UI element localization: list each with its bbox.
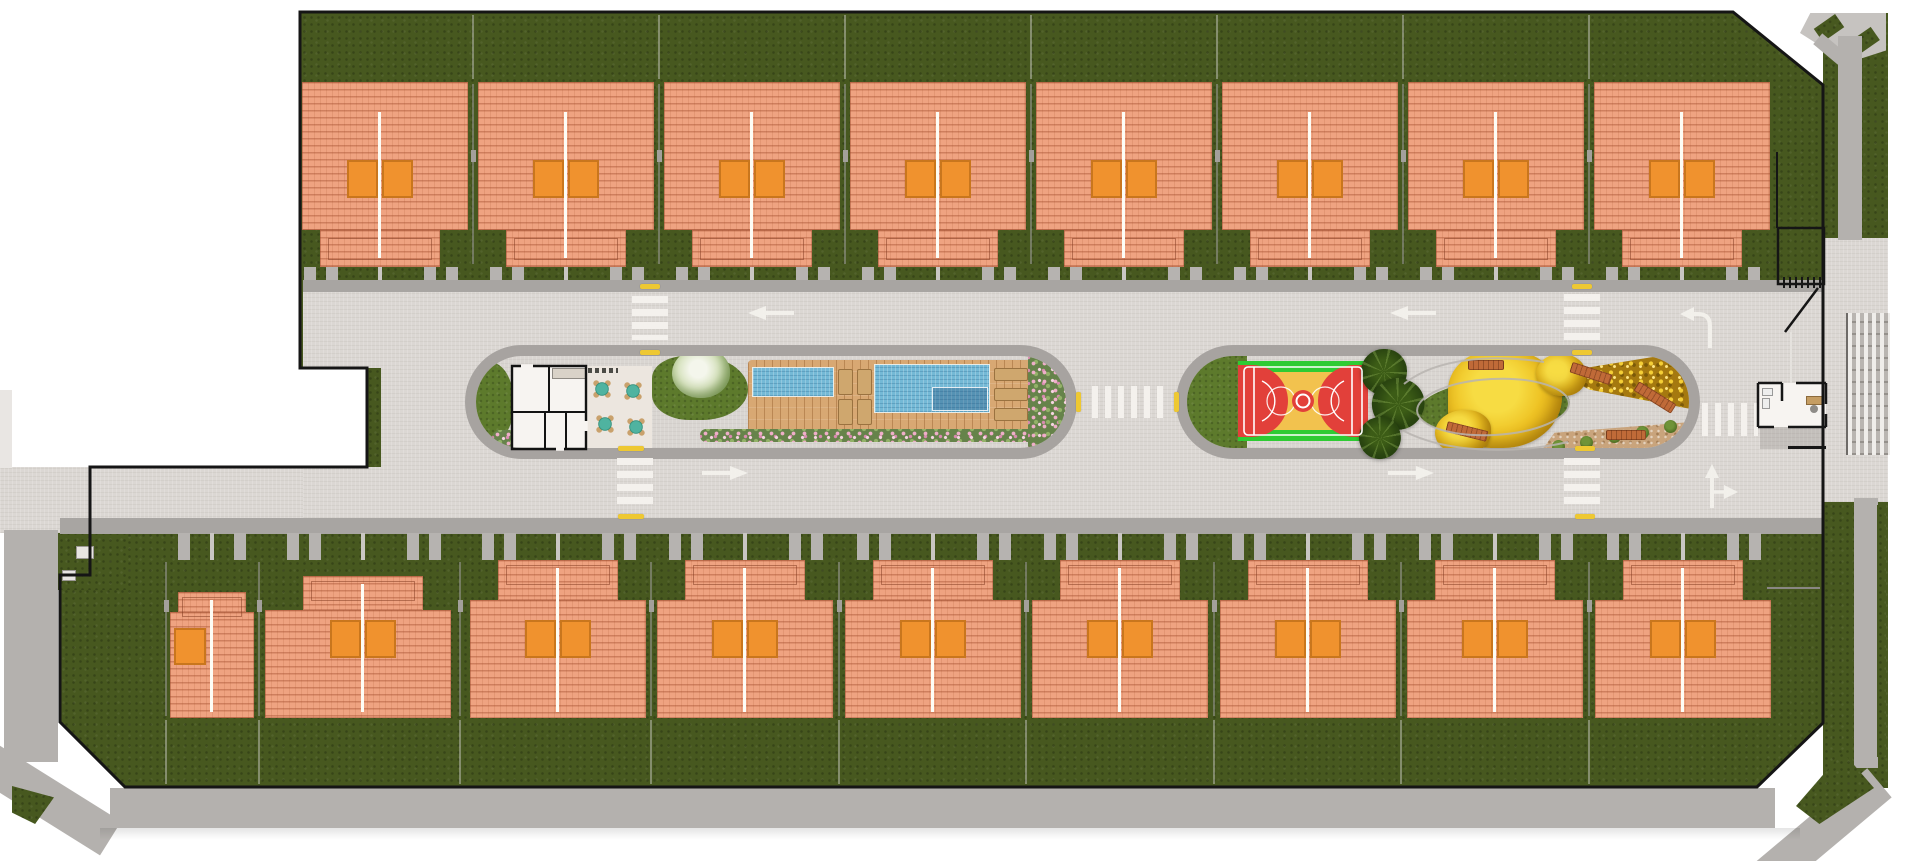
roof-ridge xyxy=(1308,112,1311,258)
driveway-stub xyxy=(999,533,1011,560)
roof-skylight xyxy=(900,620,931,658)
front-path xyxy=(564,267,568,280)
fence-post xyxy=(1399,600,1404,612)
driveway-stub xyxy=(504,533,516,560)
roof-skylight xyxy=(1649,160,1680,198)
backyard-fence xyxy=(1588,15,1590,79)
perimeter-road-east xyxy=(1854,498,1878,768)
crosswalk xyxy=(1092,386,1168,418)
driveway-stub xyxy=(610,267,622,280)
lot-divider xyxy=(1588,84,1590,264)
driveway-stub xyxy=(1186,533,1198,560)
roof-skylight xyxy=(1463,160,1494,198)
roof-skylight xyxy=(1685,620,1716,658)
front-path xyxy=(1308,267,1312,280)
driveway-stub xyxy=(309,533,321,560)
roof-skylight xyxy=(935,620,966,658)
road-edge-marker xyxy=(1575,446,1595,451)
driveway-stub xyxy=(482,533,494,560)
driveway-stub xyxy=(1070,267,1082,280)
front-path xyxy=(378,267,382,280)
lot-divider xyxy=(650,562,652,716)
driveway-stub xyxy=(1749,533,1761,560)
driveway-stub xyxy=(857,533,869,560)
driveway-stub xyxy=(490,267,502,280)
amenity-island-clubhouse-pool xyxy=(465,345,1077,459)
flowering-tree xyxy=(672,348,730,398)
driveway-stub xyxy=(1232,533,1244,560)
pool-lounger xyxy=(838,399,853,425)
lot-divider xyxy=(1030,84,1032,264)
gatehouse-desk xyxy=(1806,396,1824,405)
fence-post xyxy=(843,150,848,162)
driveway-stub xyxy=(1376,267,1388,280)
east-service-path xyxy=(1838,36,1862,240)
roof-ridge xyxy=(743,568,746,712)
front-path xyxy=(1122,267,1126,280)
front-path xyxy=(361,533,365,560)
driveway-stub xyxy=(811,533,823,560)
crosswalk xyxy=(1702,403,1758,436)
backyard-fence xyxy=(1216,15,1218,79)
gatehouse-access-path xyxy=(1790,332,1792,383)
backyard-fence xyxy=(1588,720,1590,784)
driveway-stub xyxy=(1374,533,1386,560)
lot-divider xyxy=(1588,562,1590,716)
driveway-stub xyxy=(1004,267,1016,280)
driveway-stub xyxy=(1629,533,1641,560)
lot-divider xyxy=(459,562,461,716)
road-edge-marker xyxy=(618,446,644,451)
roof-ridge xyxy=(1122,112,1125,258)
roof-skylight xyxy=(1126,160,1157,198)
roof-skylight xyxy=(525,620,556,658)
roof-skylight xyxy=(533,160,564,198)
backyard-fence xyxy=(258,720,260,784)
backyard-fence xyxy=(1030,15,1032,79)
south-sidewalk xyxy=(60,518,1823,534)
crosswalk xyxy=(617,458,653,506)
roof-skylight xyxy=(1312,160,1343,198)
roof-skylight xyxy=(940,160,971,198)
roof-skylight xyxy=(905,160,936,198)
driveway-stub xyxy=(1256,267,1268,280)
roof-ridge xyxy=(378,112,381,258)
driveway-stub xyxy=(691,533,703,560)
driveway-stub xyxy=(1442,267,1454,280)
driveway-stub xyxy=(1561,533,1573,560)
driveway-stub xyxy=(884,267,896,280)
backyard-fence xyxy=(1025,720,1027,784)
driveway-stub xyxy=(1562,267,1574,280)
terrace-table xyxy=(624,382,642,400)
gatehouse-wc-fixture xyxy=(1762,398,1770,409)
driveway-stub xyxy=(1441,533,1453,560)
roof-ridge xyxy=(931,568,934,712)
road-edge-marker xyxy=(640,350,660,355)
driveway-stub xyxy=(977,533,989,560)
perimeter-road-west xyxy=(4,530,58,762)
gatehouse-wc-fixture xyxy=(1762,388,1773,396)
driveway-stub xyxy=(304,267,316,280)
front-path xyxy=(1493,533,1497,560)
fence-post xyxy=(458,600,463,612)
kitchen-counter xyxy=(552,368,586,379)
roof-ridge xyxy=(1681,568,1684,712)
pool-lounger xyxy=(994,388,1028,401)
terrace-counter-seats xyxy=(588,368,618,373)
lap-pool-step xyxy=(932,387,988,411)
roof-ridge xyxy=(936,112,939,258)
driveway-stub xyxy=(234,533,246,560)
gatehouse-chair xyxy=(1810,405,1818,413)
roof-skylight xyxy=(1310,620,1341,658)
roof-skylight xyxy=(1122,620,1153,658)
site-plan xyxy=(0,0,1920,861)
roof-skylight xyxy=(347,160,378,198)
driveway-stub xyxy=(446,267,458,280)
roof-skylight xyxy=(174,628,206,665)
driveway-stub xyxy=(1419,533,1431,560)
lot-divider xyxy=(1400,562,1402,716)
roof-skylight xyxy=(1277,160,1308,198)
fence-post xyxy=(1029,150,1034,162)
fence-post xyxy=(1212,600,1217,612)
driveway-stub xyxy=(1748,267,1760,280)
fence-post xyxy=(471,150,476,162)
fence-post xyxy=(1024,600,1029,612)
fence-post xyxy=(164,600,169,612)
road-edge-marker xyxy=(1572,284,1592,289)
front-path xyxy=(936,267,940,280)
driveway-stub xyxy=(1190,267,1202,280)
garden-shrub xyxy=(1664,420,1677,433)
front-path xyxy=(750,267,754,280)
backyard-fence xyxy=(844,15,846,79)
amenity-island-court-garden xyxy=(1176,345,1700,459)
island-lawn-west-cap xyxy=(1179,354,1247,450)
driveway-stub xyxy=(1066,533,1078,560)
roof-skylight xyxy=(330,620,361,658)
crosswalk xyxy=(632,296,668,340)
driveway-stub xyxy=(669,533,681,560)
roof-skylight xyxy=(1684,160,1715,198)
driveway-stub xyxy=(1234,267,1246,280)
road-edge-marker xyxy=(1076,392,1081,412)
front-path xyxy=(743,533,747,560)
garden-shrub xyxy=(1552,440,1565,453)
roof-skylight xyxy=(712,620,743,658)
driveway-stub xyxy=(1420,267,1432,280)
roof-skylight xyxy=(719,160,750,198)
driveway-stub xyxy=(1354,267,1366,280)
roof-ridge xyxy=(1306,568,1309,712)
driveway-stub xyxy=(1628,267,1640,280)
crosswalk xyxy=(1564,458,1600,506)
roof-skylight xyxy=(568,160,599,198)
lot-divider xyxy=(844,84,846,264)
driveway-stub xyxy=(1539,533,1551,560)
front-path xyxy=(931,533,935,560)
roof-skylight xyxy=(747,620,778,658)
roof-skylight xyxy=(1462,620,1493,658)
driveway-stub xyxy=(676,267,688,280)
road-edge-marker xyxy=(1575,514,1595,519)
fence-post xyxy=(257,600,262,612)
driveway-stub xyxy=(1726,267,1738,280)
lot-divider xyxy=(1213,562,1215,716)
roof-skylight xyxy=(1091,160,1122,198)
lot-divider xyxy=(1025,562,1027,716)
backyard-fence xyxy=(658,15,660,79)
driveway-stub xyxy=(1540,267,1552,280)
driveway-stub xyxy=(407,533,419,560)
garden-bench xyxy=(1606,430,1646,440)
north-sidewalk xyxy=(303,280,1823,292)
terrace-table xyxy=(593,380,611,398)
crosswalk xyxy=(1564,294,1600,342)
terrace-table xyxy=(627,418,645,436)
roof-ridge xyxy=(210,600,213,712)
garden-bench xyxy=(1468,360,1504,370)
driveway-stub xyxy=(879,533,891,560)
driveway-stub xyxy=(982,267,994,280)
driveway-stub xyxy=(1352,533,1364,560)
utility-box xyxy=(62,570,76,581)
road-edge-marker xyxy=(1572,350,1592,355)
roof-skylight xyxy=(560,620,591,658)
basketball-court xyxy=(1238,361,1368,441)
boundary-notch xyxy=(60,368,367,467)
driveway-stub xyxy=(789,533,801,560)
lot-divider xyxy=(658,84,660,264)
terrace-table xyxy=(596,415,614,433)
roof-skylight xyxy=(1650,620,1681,658)
driveway-stub xyxy=(602,533,614,560)
driveway-stub xyxy=(1606,267,1618,280)
driveway-stub xyxy=(1164,533,1176,560)
fence-post xyxy=(837,600,842,612)
roof-ridge xyxy=(564,112,567,258)
fence-post xyxy=(657,150,662,162)
roof-skylight xyxy=(1275,620,1306,658)
bottom-edge-shadow xyxy=(100,828,1800,840)
backyard-fence xyxy=(459,720,461,784)
party-terrace xyxy=(586,366,652,449)
flower-bed-strip xyxy=(700,429,1040,442)
fence-post xyxy=(1587,600,1592,612)
roof-ridge xyxy=(361,584,364,712)
roof-ridge xyxy=(1118,568,1121,712)
front-path xyxy=(1680,267,1684,280)
backyard-fence xyxy=(165,720,167,784)
driveway-stub xyxy=(1727,533,1739,560)
backyard-fence xyxy=(1400,720,1402,784)
front-path xyxy=(556,533,560,560)
outer-sidewalk-sliver xyxy=(0,390,12,468)
front-path xyxy=(210,533,214,560)
lot-divider xyxy=(1402,84,1404,264)
house-roof xyxy=(302,82,468,230)
driveway-stub xyxy=(624,533,636,560)
driveway-stub xyxy=(862,267,874,280)
pool-lounger xyxy=(994,368,1028,381)
roof-ridge xyxy=(750,112,753,258)
backyard-fence xyxy=(1213,720,1215,784)
lot-divider xyxy=(165,562,167,716)
driveway-stub xyxy=(326,267,338,280)
roof-skylight xyxy=(1087,620,1118,658)
fence-post xyxy=(1401,150,1406,162)
driveway-stub xyxy=(698,267,710,280)
driveway-stub xyxy=(424,267,436,280)
roof-skylight xyxy=(382,160,413,198)
roof-skylight xyxy=(1498,160,1529,198)
entrance-gate-grate xyxy=(1846,313,1890,455)
lot-divider xyxy=(258,562,260,716)
backyard-fence xyxy=(650,720,652,784)
roof-ridge xyxy=(556,568,559,712)
front-path xyxy=(1118,533,1122,560)
driveway-stub xyxy=(287,533,299,560)
road-edge-marker xyxy=(1174,392,1179,412)
driveway-stub xyxy=(632,267,644,280)
driveway-stub xyxy=(178,533,190,560)
driveway-stub xyxy=(1254,533,1266,560)
driveway-stub xyxy=(1168,267,1180,280)
grass-fill-west xyxy=(58,530,128,590)
pool-lounger xyxy=(857,399,872,425)
lot-divider xyxy=(1216,84,1218,264)
entrance-wall-stub xyxy=(1788,446,1826,449)
pool-lounger xyxy=(994,408,1028,421)
driveway-stub xyxy=(1048,267,1060,280)
pool-lounger xyxy=(857,369,872,395)
roof-ridge xyxy=(1494,112,1497,258)
lot-divider xyxy=(838,562,840,716)
road-edge-marker xyxy=(640,284,660,289)
utility-box xyxy=(76,546,94,559)
driveway-stub xyxy=(1607,533,1619,560)
driveway-stub xyxy=(796,267,808,280)
fence-post xyxy=(1587,150,1592,162)
driveway-stub xyxy=(818,267,830,280)
grass-strip-notch-edge xyxy=(367,368,381,467)
fence-post xyxy=(649,600,654,612)
front-path xyxy=(1681,533,1685,560)
driveway-stub xyxy=(1044,533,1056,560)
roof-skylight xyxy=(1497,620,1528,658)
lot-divider xyxy=(472,84,474,264)
road-edge-marker xyxy=(618,514,644,519)
roof-ridge xyxy=(1493,568,1496,712)
kids-pool xyxy=(752,367,834,397)
driveway-stub xyxy=(429,533,441,560)
pool-lounger xyxy=(838,369,853,395)
roof-skylight xyxy=(365,620,396,658)
backyard-fence xyxy=(472,15,474,79)
backyard-fence xyxy=(838,720,840,784)
fence-post xyxy=(1215,150,1220,162)
roof-ridge xyxy=(1680,112,1683,258)
backyard-fence xyxy=(1402,15,1404,79)
roof-skylight xyxy=(754,160,785,198)
green-sliver-east xyxy=(1877,505,1886,757)
front-path xyxy=(1494,267,1498,280)
perimeter-road-south xyxy=(110,788,1775,828)
driveway-stub xyxy=(512,267,524,280)
front-path xyxy=(1306,533,1310,560)
